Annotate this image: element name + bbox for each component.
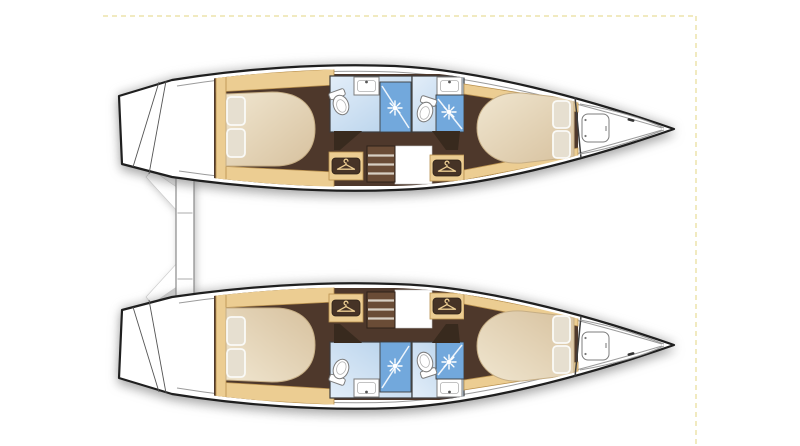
hull-geometry-instance bbox=[119, 283, 674, 409]
hanger-icon bbox=[332, 158, 360, 174]
mirrored-hull bbox=[119, 283, 674, 409]
catamaran-layout-plan bbox=[0, 0, 800, 446]
hanger-icon bbox=[433, 298, 461, 314]
starboard-hull bbox=[119, 283, 674, 409]
port-hull bbox=[119, 65, 674, 191]
floorplan-canvas bbox=[0, 0, 800, 446]
hanger-icon bbox=[433, 160, 461, 176]
hull-geometry-instance bbox=[119, 65, 674, 191]
hanger-icon bbox=[332, 300, 360, 316]
